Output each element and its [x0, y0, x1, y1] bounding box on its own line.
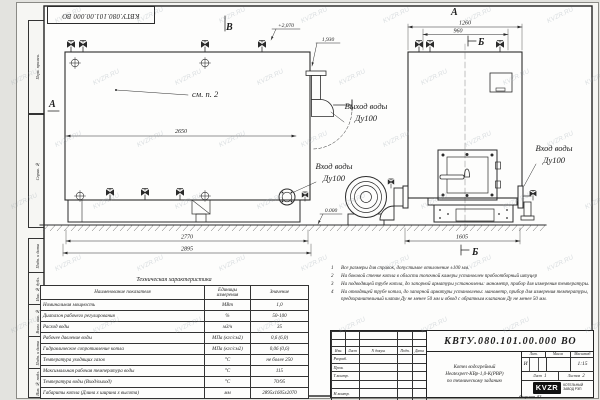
spec-header: Значение — [251, 286, 309, 300]
doc-name-line: Heatexpert-КВр-1,0-К(РВР) — [445, 371, 503, 378]
section-letter-a-left: А — [48, 99, 56, 110]
elevation-zero: 0.000 — [325, 208, 338, 214]
dim-1605: 1605 — [456, 235, 468, 241]
lit-header: Лит. — [522, 351, 546, 358]
view-letter-a-front: А — [450, 7, 458, 18]
inlet-size-front: Ду100 — [542, 155, 566, 165]
spec-header: Единицы измерения — [205, 286, 251, 300]
spec-row: Гидравлическое сопротивление котлаМПа (к… — [41, 344, 309, 355]
sheet-label: Лист — [533, 374, 542, 378]
spec-header: Наименование показателя — [41, 286, 205, 300]
spec-row: Рабочее давление водыМПа (кгс/см2)0,6 (6… — [41, 333, 309, 344]
sheet-value: 1 — [544, 374, 547, 379]
doc-name-line: по техническому заданию — [447, 378, 502, 385]
format-note: Формат А3 — [519, 394, 541, 399]
notes-block: 1Все размеры для справок, допустимое отк… — [331, 266, 590, 305]
drawing-sheet: В А см. п. 2 +2,070 1,930 0.000 2650 277… — [0, 0, 600, 400]
inlet-label-side: Вход воды — [316, 161, 353, 171]
mass-header: Масса — [546, 351, 570, 358]
view-letter-b: В — [225, 22, 233, 33]
spec-row: Диапазон рабочего регулирования%50-100 — [41, 311, 309, 322]
spec-block: Техническая характеристика Наименование … — [40, 277, 308, 399]
inlet-size-side: Ду100 — [322, 173, 346, 183]
top-designation-stamp: КВТУ.080.101.00.000 ВО — [47, 6, 155, 24]
inlet-label-front: Вход воды — [536, 143, 573, 153]
dim-960: 960 — [454, 29, 463, 35]
scale-value: 1:15 — [571, 358, 594, 371]
dim-1260: 1260 — [459, 21, 471, 27]
titleblock-signatures: Изм.ЛистN докум.Подп.ДатаРазраб.Пров.Т.к… — [331, 331, 426, 397]
titleblock-left-grid: Изм.ЛистN докум.Подп.ДатаРазраб.Пров.Т.к… — [331, 331, 427, 400]
note-item: 3На подводящей трубе котла, до запорной … — [331, 282, 590, 289]
elevation-top: +2,070 — [278, 23, 294, 29]
scale-header: Масштаб — [571, 351, 594, 358]
mass-value — [547, 358, 571, 371]
logo-caption-2: ЗАВОД РЭП — [563, 387, 581, 391]
outlet-size: Ду100 — [354, 113, 378, 123]
sheets-label: Листов — [568, 374, 580, 378]
drawing-designation: КВТУ.080.101.00.000 ВО — [426, 331, 594, 352]
spec-row: Максимальная рабочая температура воды°С1… — [41, 366, 309, 377]
spec-row: Расход водым3/ч35 — [41, 322, 309, 333]
dim-2650: 2650 — [175, 129, 187, 135]
section-letter-b-top: Б — [477, 37, 485, 48]
spec-row: Габариты котла (Длина х ширина х высота)… — [41, 388, 309, 399]
section-letter-b-bottom: Б — [471, 247, 479, 258]
titleblock-right: Лит. Масса Масштаб И 1:15 Лист 1 Листов — [521, 351, 594, 397]
spec-row: Температура уходящих газов°Сне более 250 — [41, 355, 309, 366]
spec-title: Техническая характеристика — [40, 277, 308, 283]
elevation-outlet: 1,930 — [322, 37, 335, 43]
callout-see-note: см. п. 2 — [192, 89, 219, 99]
kvzr-logo-icon: KVZR — [533, 382, 561, 394]
dim-2770: 2770 — [181, 235, 193, 241]
spec-row: Температура воды (Вход/выход)°С70/95 — [41, 377, 309, 388]
top-designation-text: КВТУ.080.101.00.000 ВО — [62, 12, 139, 19]
dim-2895: 2895 — [181, 247, 193, 253]
lit-value: И — [522, 358, 530, 371]
door-handle — [440, 175, 464, 179]
title-block: Изм.ЛистN докум.Подп.ДатаРазраб.Пров.Т.к… — [330, 330, 594, 398]
outlet-label: Выход воды — [345, 101, 388, 111]
doc-name-line: Котел водогрейный — [454, 364, 496, 371]
document-name: Котел водогрейныйHeatexpert-КВр-1,0-К(РВ… — [426, 351, 522, 397]
note-item: 1Все размеры для справок, допустимое отк… — [331, 266, 590, 273]
spec-table: Наименование показателяЕдиницы измерения… — [40, 285, 309, 399]
spec-row: Номинальная мощностьМВт1,0 — [41, 300, 309, 311]
note-item: 4На отводящей трубе котла, до запорной а… — [331, 290, 590, 303]
note-item: 2На боковой стенке котла в области топоч… — [331, 274, 590, 281]
sheets-value: 2 — [582, 374, 585, 379]
